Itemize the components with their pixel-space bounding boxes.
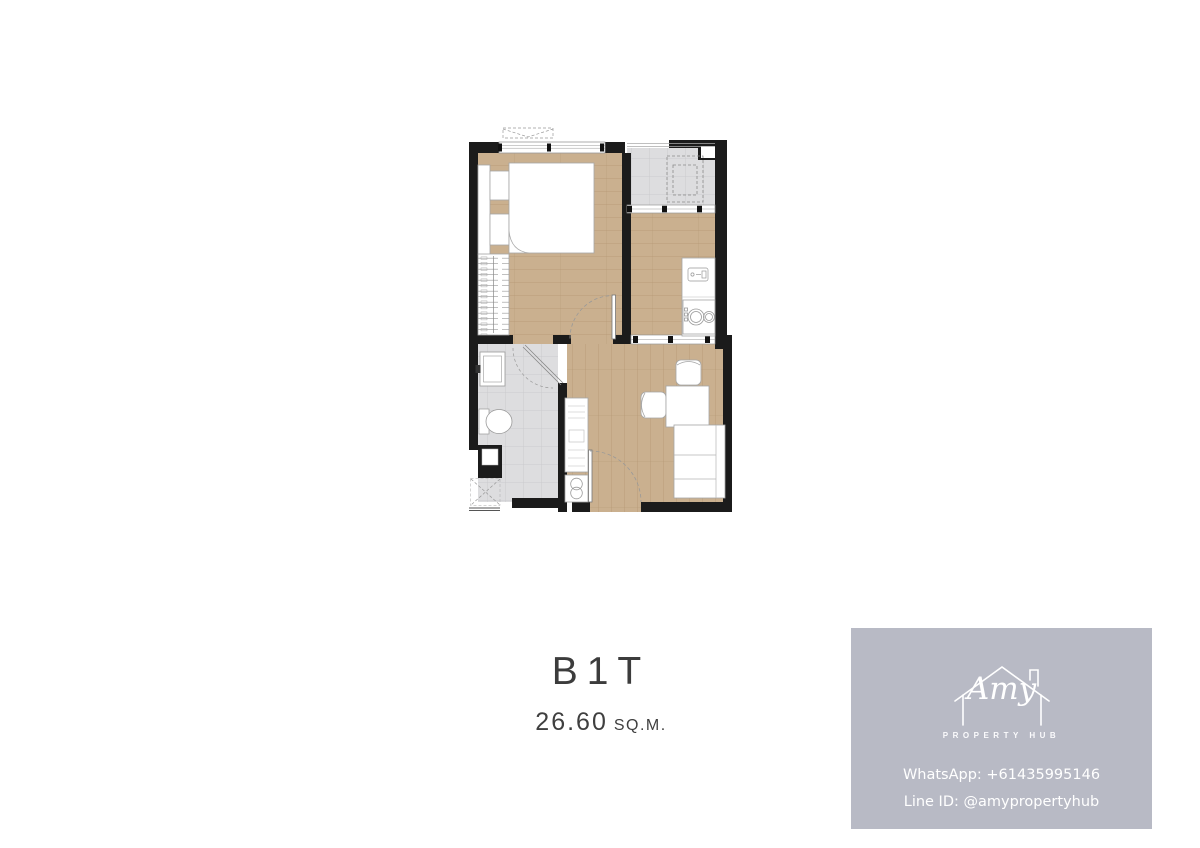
bedroom-door-threshold [571, 335, 613, 344]
sofa [674, 425, 725, 498]
bathroom-sink [476, 352, 506, 386]
dining-chair-top [676, 360, 701, 385]
page: B1T 26.60SQ.M. Amy PROPERTY HUB WhatsApp… [0, 0, 1200, 848]
brand-logo: Amy PROPERTY HUB [940, 654, 1064, 740]
nightstand-bottom [490, 214, 509, 245]
unit-area: 26.60SQ.M. [451, 708, 751, 737]
bathroom-door-threshold [513, 335, 553, 344]
niche [482, 449, 498, 465]
area-value: 26.60 [535, 708, 608, 736]
contact-block: WhatsApp: +61435995146 Line ID: @amyprop… [851, 762, 1152, 816]
headboard [478, 165, 490, 255]
kitchen-counter [682, 258, 715, 336]
wardrobe [478, 254, 509, 335]
area-unit: SQ.M. [614, 717, 667, 734]
awning-window-symbol [503, 128, 553, 138]
washing-machine [565, 475, 588, 502]
bedroom-window [498, 142, 605, 153]
line-id-contact: Line ID: @amypropertyhub [851, 789, 1152, 816]
dining-table [666, 386, 709, 427]
bed-mattress [509, 163, 594, 253]
nightstand-top [490, 171, 509, 200]
dining-chair-left [641, 392, 666, 418]
floor-plan [469, 126, 736, 514]
agent-card: Amy PROPERTY HUB WhatsApp: +61435995146 … [851, 628, 1152, 829]
unit-name: B1T [451, 650, 751, 694]
brand-script: Amy [940, 674, 1064, 705]
brand-sub-label: PROPERTY HUB [940, 731, 1064, 740]
whatsapp-contact: WhatsApp: +61435995146 [851, 762, 1152, 789]
tv-cabinet [565, 398, 588, 472]
balcony-sliding-door [627, 205, 715, 213]
entry-threshold [590, 502, 641, 512]
toilet [479, 409, 512, 434]
